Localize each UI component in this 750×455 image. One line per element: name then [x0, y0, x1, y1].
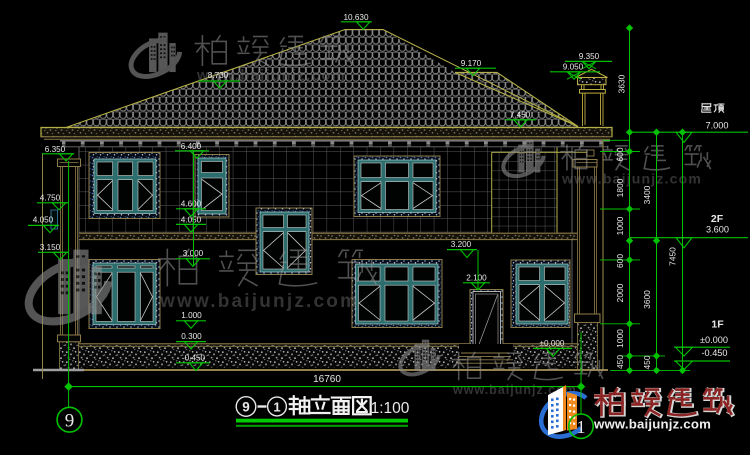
svg-text:6.400: 6.400 [181, 142, 202, 151]
svg-text:9: 9 [242, 399, 250, 414]
svg-text:4.600: 4.600 [181, 199, 202, 208]
svg-text:3630: 3630 [617, 74, 627, 93]
svg-text:3400: 3400 [642, 185, 652, 204]
svg-text:±0.000: ±0.000 [540, 339, 565, 348]
svg-text:2.100: 2.100 [466, 274, 487, 283]
svg-text:600: 600 [615, 147, 625, 161]
svg-text:7450: 7450 [668, 247, 678, 266]
svg-text:www.baijunjz.com: www.baijunjz.com [561, 171, 702, 187]
svg-text:1: 1 [577, 417, 586, 437]
svg-text:1000: 1000 [615, 216, 625, 235]
svg-text:www.baijunjz.com: www.baijunjz.com [159, 291, 359, 312]
svg-text:7.000: 7.000 [706, 121, 729, 131]
svg-text:8.730: 8.730 [208, 71, 229, 80]
svg-text:9: 9 [65, 411, 75, 432]
svg-text:±0.000: ±0.000 [700, 335, 728, 345]
svg-text:9.170: 9.170 [461, 59, 482, 68]
svg-text:450: 450 [615, 355, 625, 369]
svg-text:1F: 1F [711, 319, 724, 331]
svg-text:4.050: 4.050 [181, 215, 202, 224]
svg-text:4.050: 4.050 [33, 216, 54, 225]
svg-text:450: 450 [642, 355, 652, 369]
svg-text:www.baijunjz.com: www.baijunjz.com [593, 417, 711, 432]
svg-text:1000: 1000 [615, 329, 625, 348]
svg-text:600: 600 [615, 254, 625, 268]
svg-text:3.200: 3.200 [451, 240, 472, 249]
svg-text:3600: 3600 [642, 290, 652, 309]
svg-text:16760: 16760 [313, 374, 341, 385]
svg-text:9.050: 9.050 [563, 63, 584, 72]
svg-text:9.350: 9.350 [579, 52, 600, 61]
svg-text:2F: 2F [711, 213, 724, 225]
svg-text:-0.450: -0.450 [701, 348, 727, 358]
svg-text:1800: 1800 [615, 178, 625, 197]
svg-text:1.000: 1.000 [181, 311, 202, 320]
svg-text:-0.450: -0.450 [182, 353, 206, 362]
svg-text:3.150: 3.150 [40, 243, 61, 252]
svg-text:1:100: 1:100 [371, 400, 410, 417]
svg-text:10.630: 10.630 [343, 13, 368, 22]
svg-text:3.600: 3.600 [706, 225, 729, 235]
svg-text:1: 1 [273, 399, 280, 414]
svg-text:4.750: 4.750 [40, 193, 61, 202]
svg-text:0.300: 0.300 [181, 332, 202, 341]
svg-text:6.350: 6.350 [45, 145, 66, 154]
svg-text:7.450: 7.450 [510, 111, 531, 120]
svg-text:2000: 2000 [615, 283, 625, 302]
